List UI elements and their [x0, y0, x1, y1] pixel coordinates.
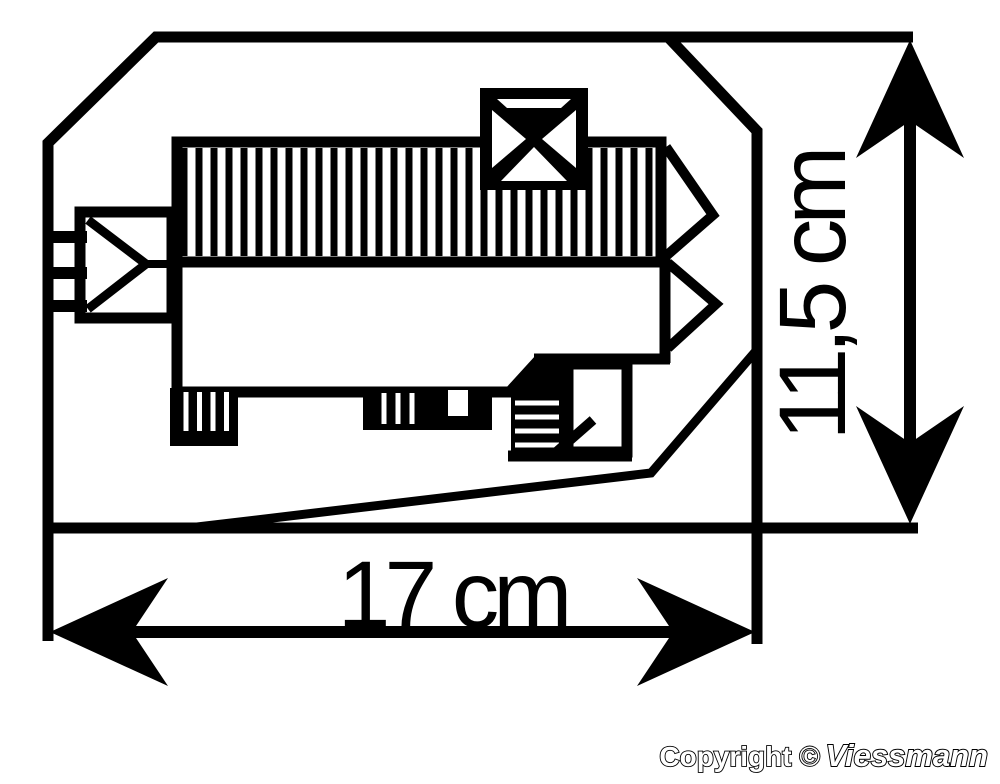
- road-marking: [197, 352, 755, 527]
- copyright-footer: Copyright © Viessmann: [659, 738, 988, 773]
- upper-hip-lines: [666, 147, 713, 256]
- left-porch: [47, 212, 177, 318]
- middle-steps: [363, 388, 492, 430]
- height-dimension: 11,5 cm: [760, 40, 964, 524]
- left-steps: [170, 388, 238, 446]
- width-dimension: 17 cm: [50, 542, 755, 686]
- middle-steps-notch: [448, 390, 468, 416]
- chimney: [480, 88, 588, 190]
- brand-logo-text: Viessmann: [825, 738, 988, 773]
- dimension-drawing-page: 11,5 cm 17 cm Copyright © Viessmann: [0, 0, 1000, 784]
- copyright-label: Copyright ©: [659, 741, 820, 772]
- width-dimension-label: 17 cm: [338, 542, 567, 648]
- road-edge-line: [197, 352, 755, 527]
- floor-plan-diagram: 11,5 cm 17 cm Copyright © Viessmann: [0, 0, 1000, 784]
- chimney-top-slot: [497, 99, 571, 108]
- lower-hip-lines: [668, 263, 716, 348]
- main-roof: [177, 142, 661, 262]
- right-hip-ends: [665, 147, 716, 363]
- height-dimension-label: 11,5 cm: [760, 152, 866, 441]
